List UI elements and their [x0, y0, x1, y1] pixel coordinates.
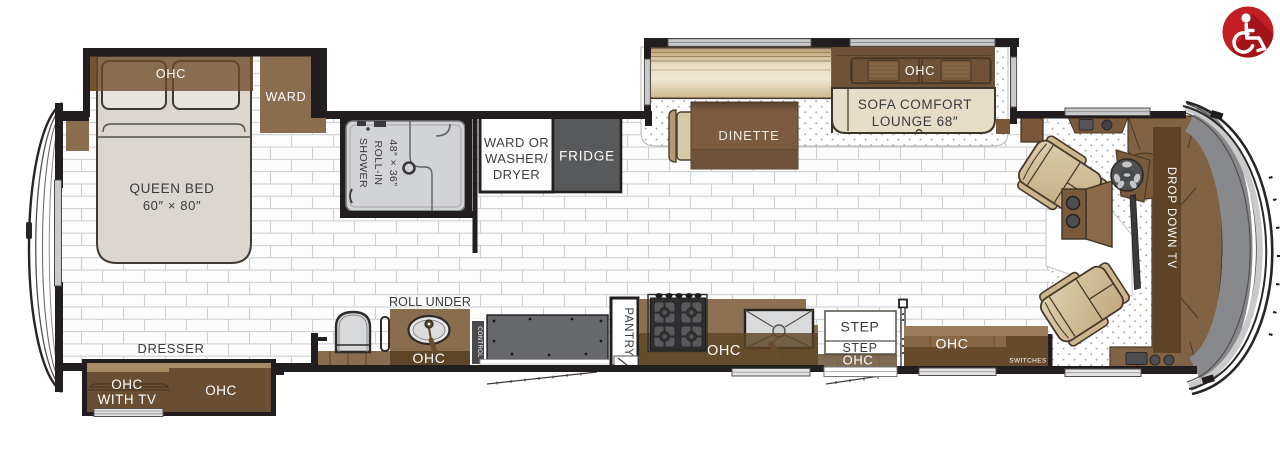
svg-text:WITH TV: WITH TV	[98, 392, 157, 407]
svg-text:DRYER: DRYER	[493, 167, 540, 182]
svg-text:OHC: OHC	[905, 64, 935, 78]
svg-text:OHC: OHC	[707, 343, 741, 359]
svg-text:OHC: OHC	[111, 377, 143, 392]
svg-text:DROP DOWN TV: DROP DOWN TV	[1165, 167, 1177, 269]
svg-text:OHC: OHC	[936, 336, 969, 352]
svg-text:QUEEN BED: QUEEN BED	[130, 181, 215, 196]
svg-text:SHOWER: SHOWER	[357, 138, 369, 188]
svg-text:60″ × 80″: 60″ × 80″	[143, 198, 201, 213]
svg-text:SOFA COMFORT: SOFA COMFORT	[858, 97, 972, 112]
svg-text:DRESSER: DRESSER	[137, 341, 204, 356]
svg-text:WASHER/: WASHER/	[485, 151, 548, 166]
svg-text:FRIDGE: FRIDGE	[559, 149, 615, 164]
svg-text:LOUNGE 68″: LOUNGE 68″	[872, 114, 959, 129]
svg-text:ROLL UNDER: ROLL UNDER	[389, 295, 471, 309]
svg-text:PANTRY: PANTRY	[622, 307, 634, 356]
svg-text:48″ × 36″: 48″ × 36″	[387, 139, 399, 186]
svg-text:DINETTE: DINETTE	[718, 128, 779, 143]
svg-text:WARD OR: WARD OR	[484, 135, 549, 150]
svg-text:CONTROL: CONTROL	[476, 326, 482, 358]
svg-text:STEP: STEP	[841, 319, 880, 335]
svg-text:WARD: WARD	[266, 90, 307, 104]
svg-text:OHC: OHC	[205, 383, 237, 398]
svg-text:SWITCHES: SWITCHES	[1009, 358, 1047, 365]
svg-text:OHC: OHC	[156, 67, 186, 81]
svg-text:OHC: OHC	[413, 350, 446, 366]
svg-text:OHC: OHC	[843, 353, 874, 368]
svg-text:ROLL-IN: ROLL-IN	[372, 141, 384, 186]
